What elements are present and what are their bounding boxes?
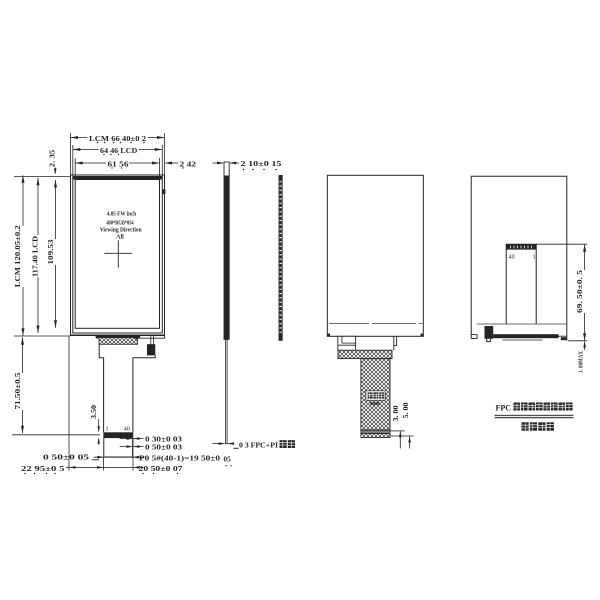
svg-text:40: 40 (124, 425, 130, 432)
svg-text:109.53: 109.53 (46, 239, 55, 264)
svg-text:LCM 66 40±0 2: LCM 66 40±0 2 (89, 134, 146, 143)
svg-text:P0 5#(40-1)=19 50±0: P0 5#(40-1)=19 50±0 (139, 454, 221, 462)
svg-text:0 50±0 05: 0 50±0 05 (43, 453, 90, 461)
svg-text:4.85 FW inch: 4.85 FW inch (107, 211, 137, 218)
svg-text:3.50: 3.50 (90, 404, 98, 419)
svg-text:69. 50±0. 5: 69. 50±0. 5 (576, 269, 584, 313)
svg-text:LCM 120.05±0.2: LCM 120.05±0.2 (13, 225, 22, 287)
svg-text:1: 1 (533, 254, 536, 261)
svg-text:480*RGB*854: 480*RGB*854 (106, 220, 133, 226)
svg-text:2. 35: 2. 35 (49, 149, 57, 167)
svg-text:05: 05 (224, 455, 232, 463)
svg-text:2 42: 2 42 (180, 159, 197, 168)
svg-text:0 3 FPC+PI: 0 3 FPC+PI (239, 440, 278, 449)
svg-text:0 50±0 03: 0 50±0 03 (145, 443, 183, 451)
svg-text:22 95±0 5: 22 95±0 5 (21, 465, 65, 473)
svg-text:2 10±0 15: 2 10±0 15 (241, 159, 282, 168)
svg-text:20 50±0 07: 20 50±0 07 (139, 465, 184, 473)
svg-text:71.50±0.5: 71.50±0.5 (13, 372, 22, 409)
svg-text:1: 1 (106, 425, 109, 432)
svg-text:61 56: 61 56 (108, 159, 129, 168)
svg-text:All: All (116, 234, 124, 240)
svg-text:3. 00: 3. 00 (392, 405, 400, 422)
svg-text:64 46 LCD: 64 46 LCD (100, 146, 138, 155)
svg-text:Viewing Direction: Viewing Direction (100, 227, 142, 234)
svg-text:5. 00: 5. 00 (402, 402, 410, 419)
svg-text:FPC: FPC (496, 404, 512, 413)
svg-text:1. 00MAX: 1. 00MAX (577, 351, 584, 373)
svg-text:117.40 LCD: 117.40 LCD (31, 235, 40, 277)
svg-text:0 30±0 03: 0 30±0 03 (145, 435, 183, 443)
svg-text:40: 40 (509, 254, 515, 261)
